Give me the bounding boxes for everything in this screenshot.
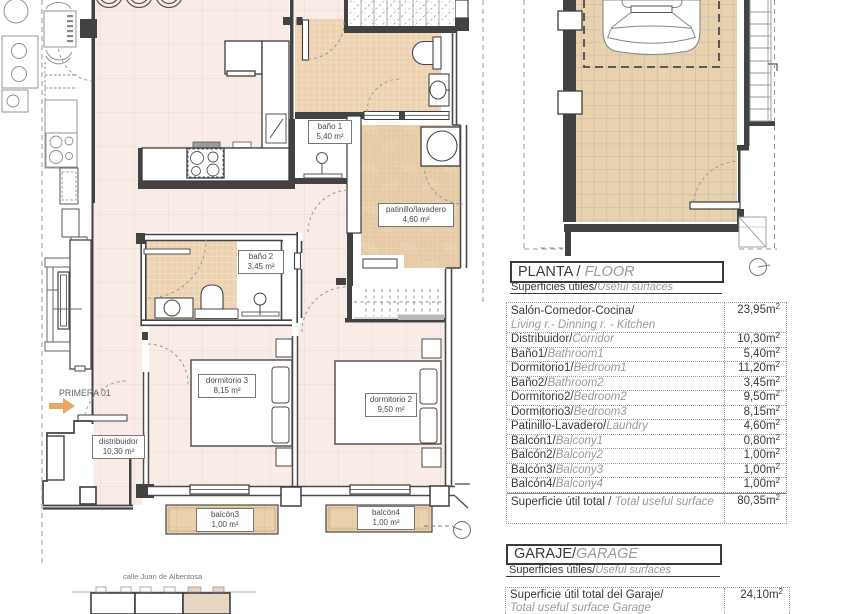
svg-text:PRIMERA 01: PRIMERA 01: [59, 388, 111, 398]
svg-text:calle Juan de Albentosa: calle Juan de Albentosa: [123, 572, 203, 581]
